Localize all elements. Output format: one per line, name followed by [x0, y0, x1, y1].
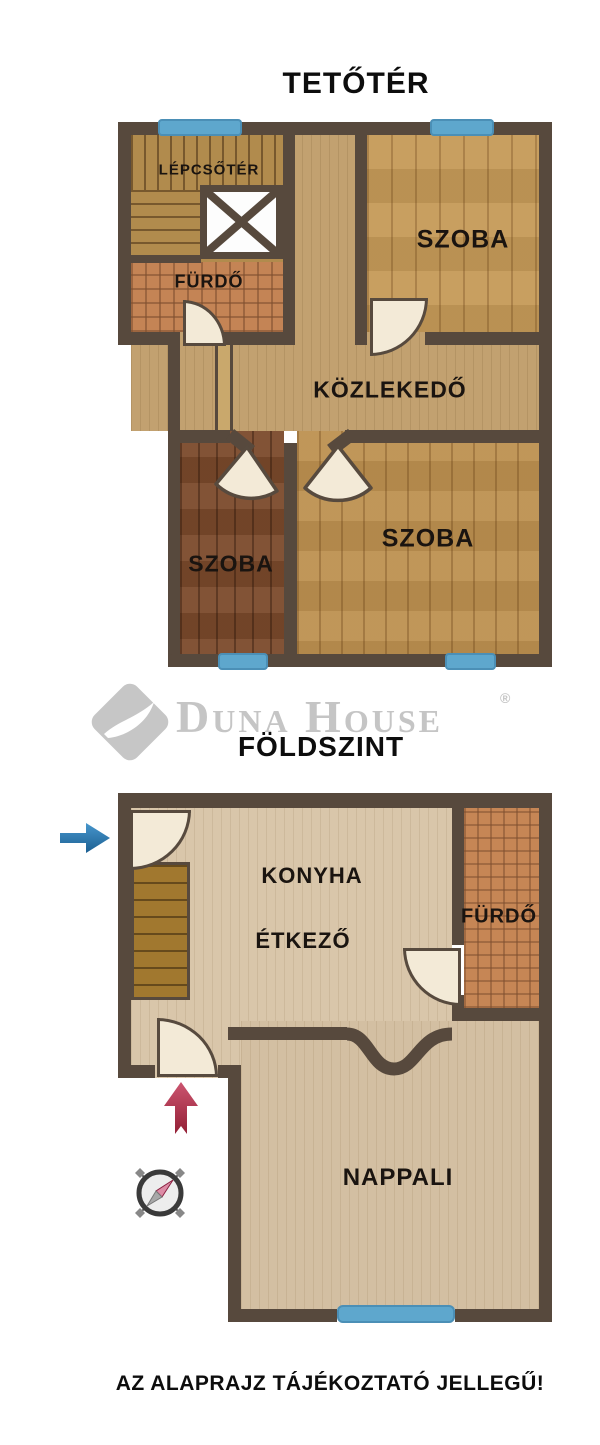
upper-floor-title: TETŐTÉR	[283, 67, 430, 101]
stair-landing-strip	[215, 345, 233, 431]
wall-segment	[118, 1065, 155, 1078]
logo-diamond-icon	[86, 680, 174, 764]
disclaimer-text: AZ ALAPRAJZ TÁJÉKOZTATÓ JELLEGŰ!	[116, 1372, 545, 1396]
label-bathroom-ground: FÜRDŐ	[461, 906, 537, 929]
wall-segment	[455, 1309, 552, 1322]
wall-segment	[168, 430, 230, 443]
label-stairwell: LÉPCSŐTÉR	[159, 162, 260, 179]
label-hallway: KÖZLEKEDŐ	[313, 377, 466, 404]
wall-segment	[131, 255, 201, 263]
wall-segment	[228, 1309, 337, 1322]
label-dining: ÉTKEZŐ	[255, 928, 350, 954]
wall-segment	[220, 332, 295, 345]
label-room-bottom-right: SZOBA	[382, 525, 475, 554]
wall-segment	[425, 332, 539, 345]
label-room-bottom-left: SZOBA	[188, 551, 274, 578]
wall-segment	[284, 443, 297, 654]
staircase-ground	[131, 862, 190, 1000]
wall-segment	[118, 793, 552, 808]
wall-segment	[539, 793, 552, 1322]
window-upper-bottom-right	[445, 653, 496, 670]
wall-segment	[283, 122, 295, 345]
wall-segment	[452, 1008, 552, 1021]
ground-floor-title: FÖLDSZINT	[238, 731, 404, 763]
wall-segment	[355, 122, 367, 345]
label-kitchen: KONYHA	[261, 863, 362, 889]
wall-segment	[168, 332, 180, 667]
entry-arrow-red-icon	[164, 1082, 198, 1134]
window-living-room	[337, 1305, 455, 1323]
compass-icon	[135, 1168, 185, 1218]
wall-segment	[345, 430, 539, 443]
x-void-marker	[200, 185, 283, 259]
wall-segment	[228, 1065, 241, 1322]
floorplan-canvas: TETŐTÉR LÉPCSŐTÉR FÜRDŐ KÖZLEKEDŐ SZOBA …	[0, 0, 600, 1445]
x-void-icon	[207, 192, 276, 252]
window-upper-bottom-left	[218, 653, 268, 670]
label-bathroom-upper: FÜRDŐ	[175, 272, 244, 293]
logo-registered-mark: ®	[500, 690, 510, 706]
room-bottom-left-floor	[180, 431, 284, 655]
label-room-top-right: SZOBA	[417, 226, 510, 255]
window-upper-top-left	[158, 119, 242, 136]
wall-segment	[228, 1027, 347, 1040]
entry-arrow-blue-icon	[60, 823, 110, 853]
label-living: NAPPALI	[343, 1164, 454, 1192]
window-upper-top-right	[430, 119, 494, 136]
stair-treads-horizontal	[131, 190, 205, 262]
wall-segment	[118, 122, 131, 345]
wall-segment	[539, 122, 552, 667]
